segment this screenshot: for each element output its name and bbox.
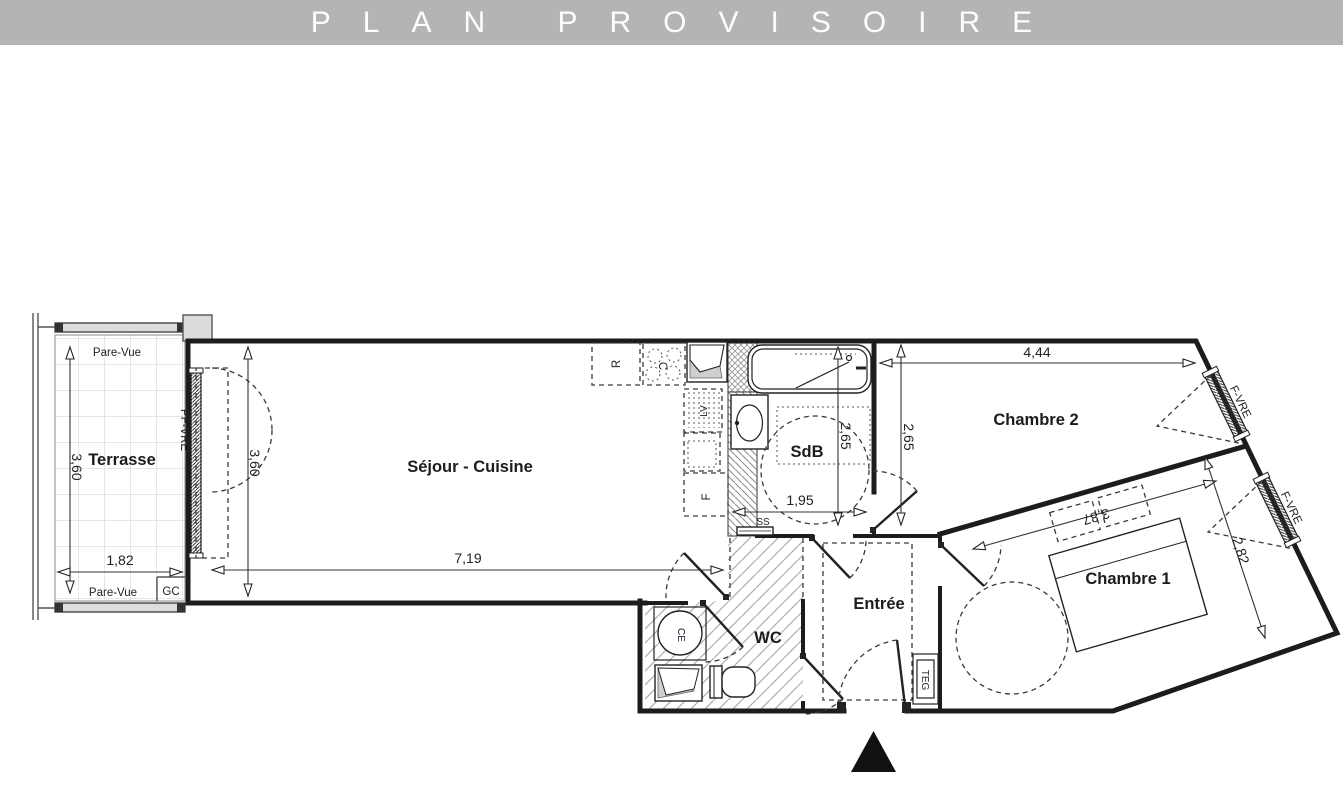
dim-terrasse-depth: 3,60 [69,453,85,480]
label-teg: TEG [919,670,930,691]
hatched-zones [645,341,803,711]
room-label-sejour-cuisine: Séjour - Cuisine [407,458,533,476]
dim-chambre1-depth: 2,82 [1229,535,1253,566]
dim-sejour-depth: 3,60 [247,449,263,476]
label-pare-vue-bottom: Pare-Vue [89,587,137,599]
label-cooktop: C [656,362,668,370]
entree-zone [823,543,912,700]
label-gc: GC [162,586,179,598]
turning-circle-chambre1 [956,582,1068,694]
room-label-chambre1: Chambre 1 [1085,570,1170,588]
label-ce: CE [675,628,686,642]
dim-sdb-depth: 2,65 [838,422,854,449]
wc-handbasin [655,665,702,701]
label-pare-vue-top: Pare-Vue [93,347,141,359]
plan-title: PLAN PROVISOIRE [279,6,1064,40]
label-refrigerator: R [611,360,623,368]
room-label-entree: Entrée [853,595,904,613]
kitchen-sink [687,342,727,382]
washbasin [731,395,768,449]
label-oven: F [701,493,713,500]
floor-plan: Terrasse Séjour - Cuisine SdB Chambre 2 … [0,0,1343,800]
label-dishwasher: LV [699,405,710,417]
entrance-marker-triangle [851,731,896,772]
label-ss: SS [756,517,770,528]
dim-chambre2-depth: 2,65 [901,423,917,450]
dim-chambre1-width: 3,87 [1081,506,1112,529]
room-label-terrasse: Terrasse [88,451,156,469]
toilet [710,666,755,698]
dim-chambre2-width: 4,44 [1023,344,1050,360]
banner: PLAN PROVISOIRE [0,0,1343,45]
bathtub [748,345,871,393]
towel-radiator [737,527,773,535]
room-label-wc: WC [754,629,782,647]
dim-terrasse-width: 1,82 [106,552,133,568]
dim-sejour-width: 7,19 [454,550,481,566]
dim-sdb-width: 1,95 [786,492,813,508]
label-pf-vre: PF-VRE [178,409,190,452]
room-label-chambre2: Chambre 2 [993,411,1078,429]
room-label-sdb: SdB [791,443,824,461]
